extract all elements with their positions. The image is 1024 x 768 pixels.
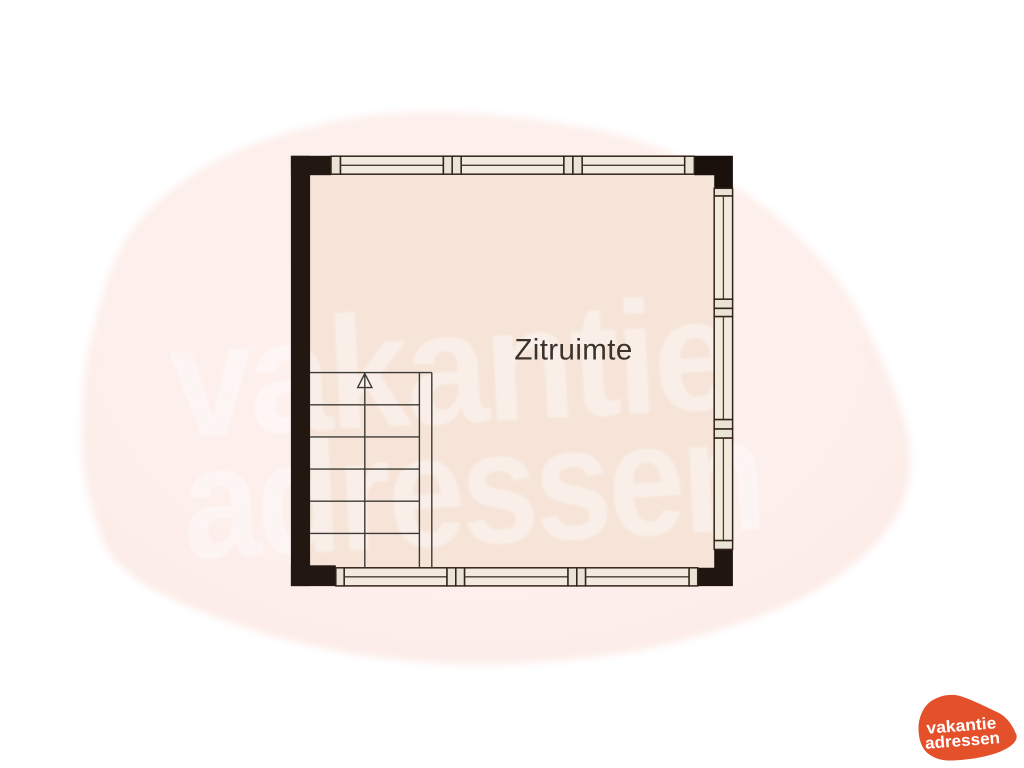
svg-text:adressen: adressen [178, 384, 767, 593]
svg-text:Zitruimte: Zitruimte [514, 334, 632, 367]
